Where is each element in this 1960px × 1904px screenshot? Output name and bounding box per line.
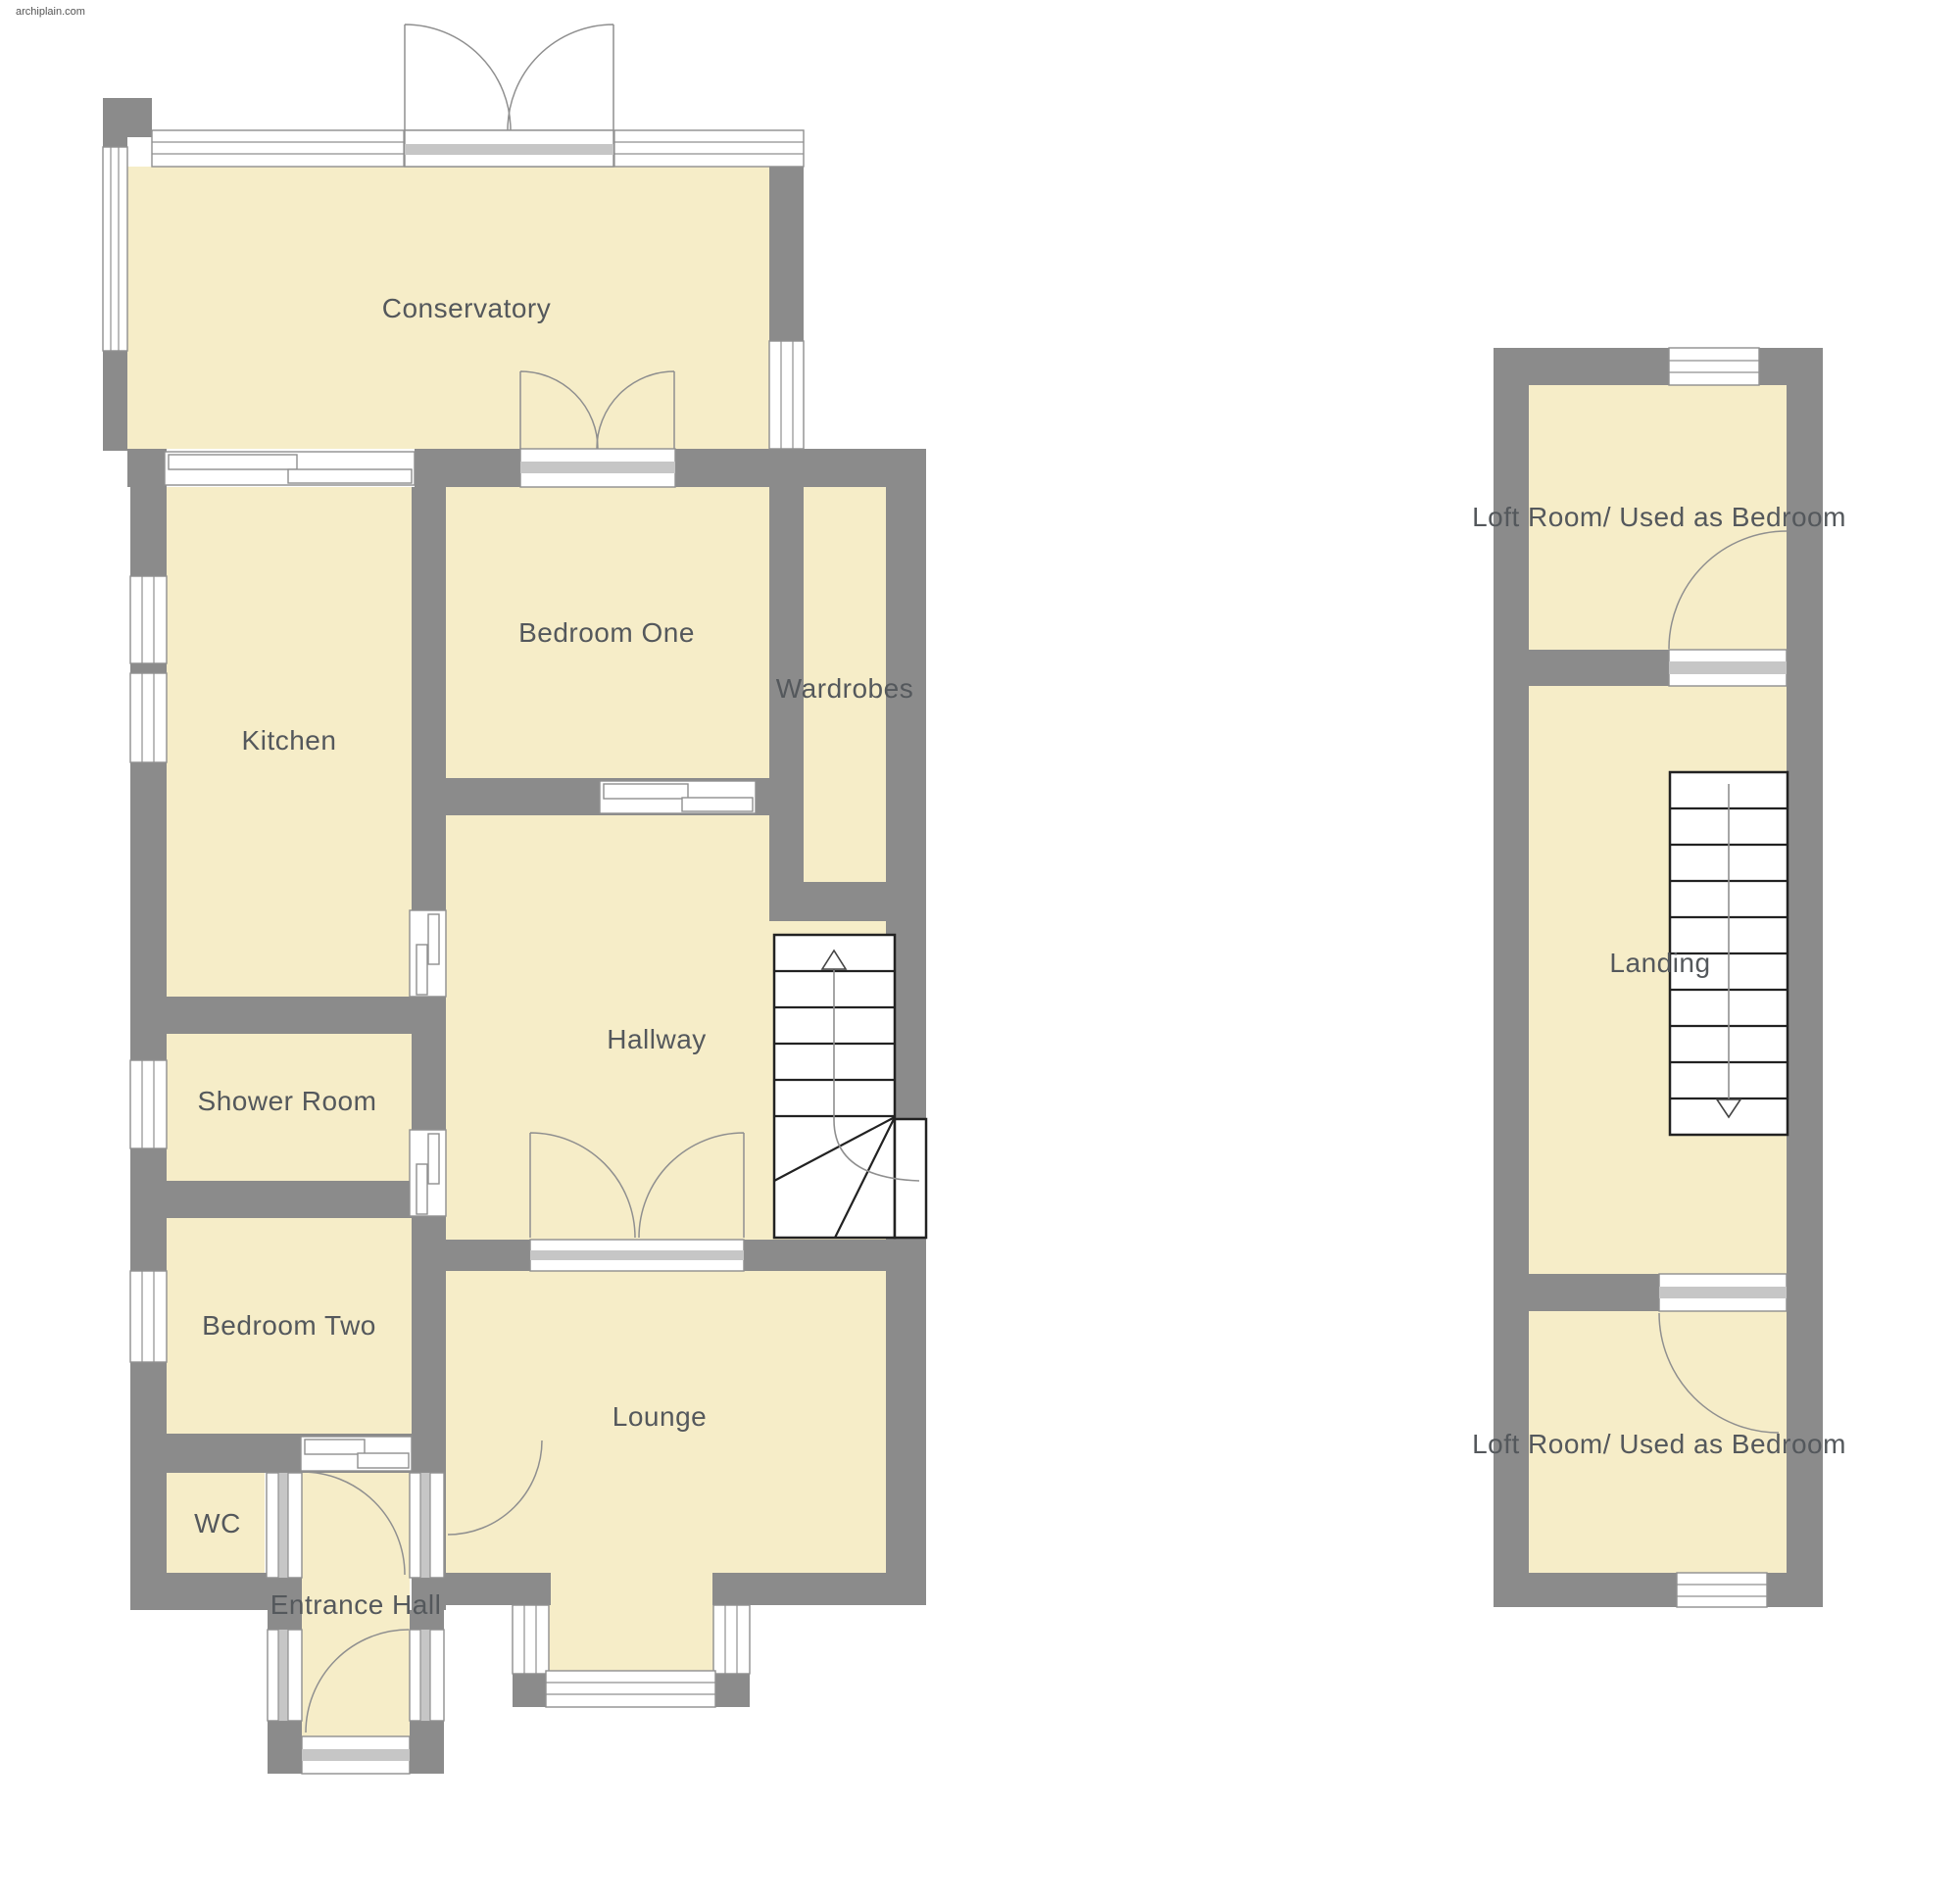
- sliding-door: [410, 1130, 446, 1216]
- sliding-door: [600, 781, 756, 813]
- wall: [415, 449, 520, 487]
- stairs-extension: [895, 1119, 926, 1238]
- first-floor-plan: Loft Room/ Used as Bedroom Landing Loft …: [1472, 348, 1846, 1607]
- door-swing: [405, 24, 511, 130]
- wall: [268, 1736, 302, 1774]
- wall: [103, 98, 152, 137]
- window: [130, 673, 167, 762]
- room-label-bedroom-one: Bedroom One: [518, 617, 695, 648]
- room-label-wardrobes: Wardrobes: [776, 673, 913, 704]
- door-threshold: [1669, 661, 1787, 674]
- window-stripe: [420, 1473, 430, 1578]
- wall: [1494, 650, 1669, 686]
- door-swing: [508, 24, 613, 130]
- window-stripe: [420, 1630, 430, 1721]
- window: [103, 147, 127, 351]
- watermark: archiplain.com: [16, 6, 85, 18]
- room-label-conservatory: Conservatory: [382, 293, 552, 323]
- room-label-loft-room-top: Loft Room/ Used as Bedroom: [1472, 502, 1846, 532]
- wall: [130, 1181, 446, 1218]
- room-label-hallway: Hallway: [607, 1024, 707, 1054]
- window: [513, 1605, 549, 1674]
- window: [130, 576, 167, 663]
- room-label-bedroom-two: Bedroom Two: [202, 1310, 376, 1341]
- window: [713, 1605, 750, 1674]
- door-threshold: [530, 1250, 744, 1260]
- wall: [1494, 348, 1823, 385]
- window-stripe: [278, 1630, 288, 1721]
- wall: [410, 1736, 444, 1774]
- wall: [1494, 1274, 1659, 1311]
- wall: [744, 1240, 887, 1271]
- sliding-door: [410, 910, 446, 997]
- window: [130, 1271, 167, 1362]
- door-threshold: [405, 144, 613, 155]
- sliding-door: [301, 1437, 412, 1471]
- ground-floor-plan: Conservatory Kitchen Bedroom One Wardrob…: [103, 24, 926, 1774]
- wall: [1494, 348, 1529, 1607]
- sliding-door: [165, 452, 415, 485]
- door-threshold: [1659, 1287, 1787, 1298]
- wall: [412, 1240, 530, 1271]
- wall: [713, 1673, 750, 1707]
- wall: [130, 997, 446, 1034]
- room-label-lounge: Lounge: [612, 1401, 707, 1432]
- room-label-landing: Landing: [1609, 948, 1710, 978]
- door-threshold: [302, 1749, 410, 1761]
- wall: [1787, 348, 1823, 1607]
- wall: [1494, 1573, 1823, 1607]
- window: [1669, 348, 1759, 385]
- room-floor-lounge-bay: [549, 1573, 713, 1671]
- window: [130, 1060, 167, 1148]
- window: [769, 341, 804, 449]
- window: [1677, 1573, 1767, 1607]
- floor-plan-page: archiplain.com: [0, 0, 1960, 1904]
- floor-plan-drawing: Conservatory Kitchen Bedroom One Wardrob…: [0, 0, 1960, 1904]
- wall: [712, 1573, 926, 1605]
- window-stripe: [278, 1473, 288, 1578]
- window: [546, 1671, 715, 1707]
- door-threshold: [520, 462, 675, 473]
- room-label-kitchen: Kitchen: [242, 725, 337, 756]
- room-label-shower-room: Shower Room: [198, 1086, 377, 1116]
- room-label-wc: WC: [194, 1508, 241, 1538]
- room-label-loft-room-bottom: Loft Room/ Used as Bedroom: [1472, 1429, 1846, 1459]
- room-label-entrance-hall: Entrance Hall: [270, 1589, 442, 1620]
- wall: [513, 1673, 549, 1707]
